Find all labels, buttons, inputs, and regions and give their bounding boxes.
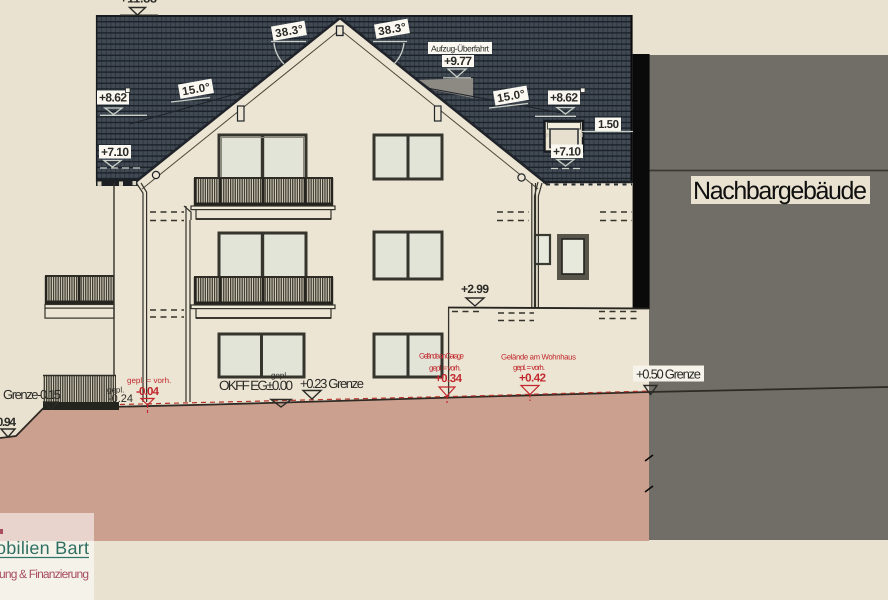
svg-text:gepl. = vorh.: gepl. = vorh.: [429, 364, 461, 373]
svg-text:Grenze-0.15: Grenze-0.15: [3, 387, 61, 402]
svg-text:-0.24: -0.24: [108, 393, 133, 405]
svg-text:obilien Bart: obilien Bart: [0, 538, 89, 558]
svg-text:Gelände an Garage: Gelände an Garage: [419, 352, 464, 361]
svg-text:Nachbargebäude: Nachbargebäude: [693, 177, 867, 205]
svg-text:OKFF EG±0.00: OKFF EG±0.00: [219, 378, 293, 393]
svg-text:+0.50 Grenze: +0.50 Grenze: [636, 367, 701, 382]
svg-text:+7.10: +7.10: [553, 145, 581, 159]
svg-text:+2.99: +2.99: [461, 282, 489, 296]
svg-text:1.50: 1.50: [598, 119, 619, 131]
svg-text:+8.62: +8.62: [550, 91, 578, 105]
svg-text:-0.04: -0.04: [136, 386, 160, 398]
svg-text:+7.10: +7.10: [101, 145, 129, 159]
svg-text:gepl. = vorh.: gepl. = vorh.: [127, 376, 171, 385]
svg-text:+9.77: +9.77: [444, 54, 472, 68]
svg-text:+11.88: +11.88: [120, 0, 157, 6]
svg-text:+0.23 Grenze: +0.23 Grenze: [300, 376, 364, 391]
svg-text:ung & Finanzierung: ung & Finanzierung: [0, 567, 89, 581]
svg-text:+0.34: +0.34: [435, 373, 463, 385]
svg-text:-0.94: -0.94: [0, 415, 16, 429]
svg-text:Gelände am Wohnhaus: Gelände am Wohnhaus: [501, 353, 576, 362]
svg-text:gepl. = vorh.: gepl. = vorh.: [513, 363, 545, 372]
svg-text:Aufzug-Überfahrt: Aufzug-Überfahrt: [431, 44, 490, 54]
svg-text:+0.42: +0.42: [519, 373, 546, 385]
svg-text:+8.62: +8.62: [99, 91, 127, 105]
